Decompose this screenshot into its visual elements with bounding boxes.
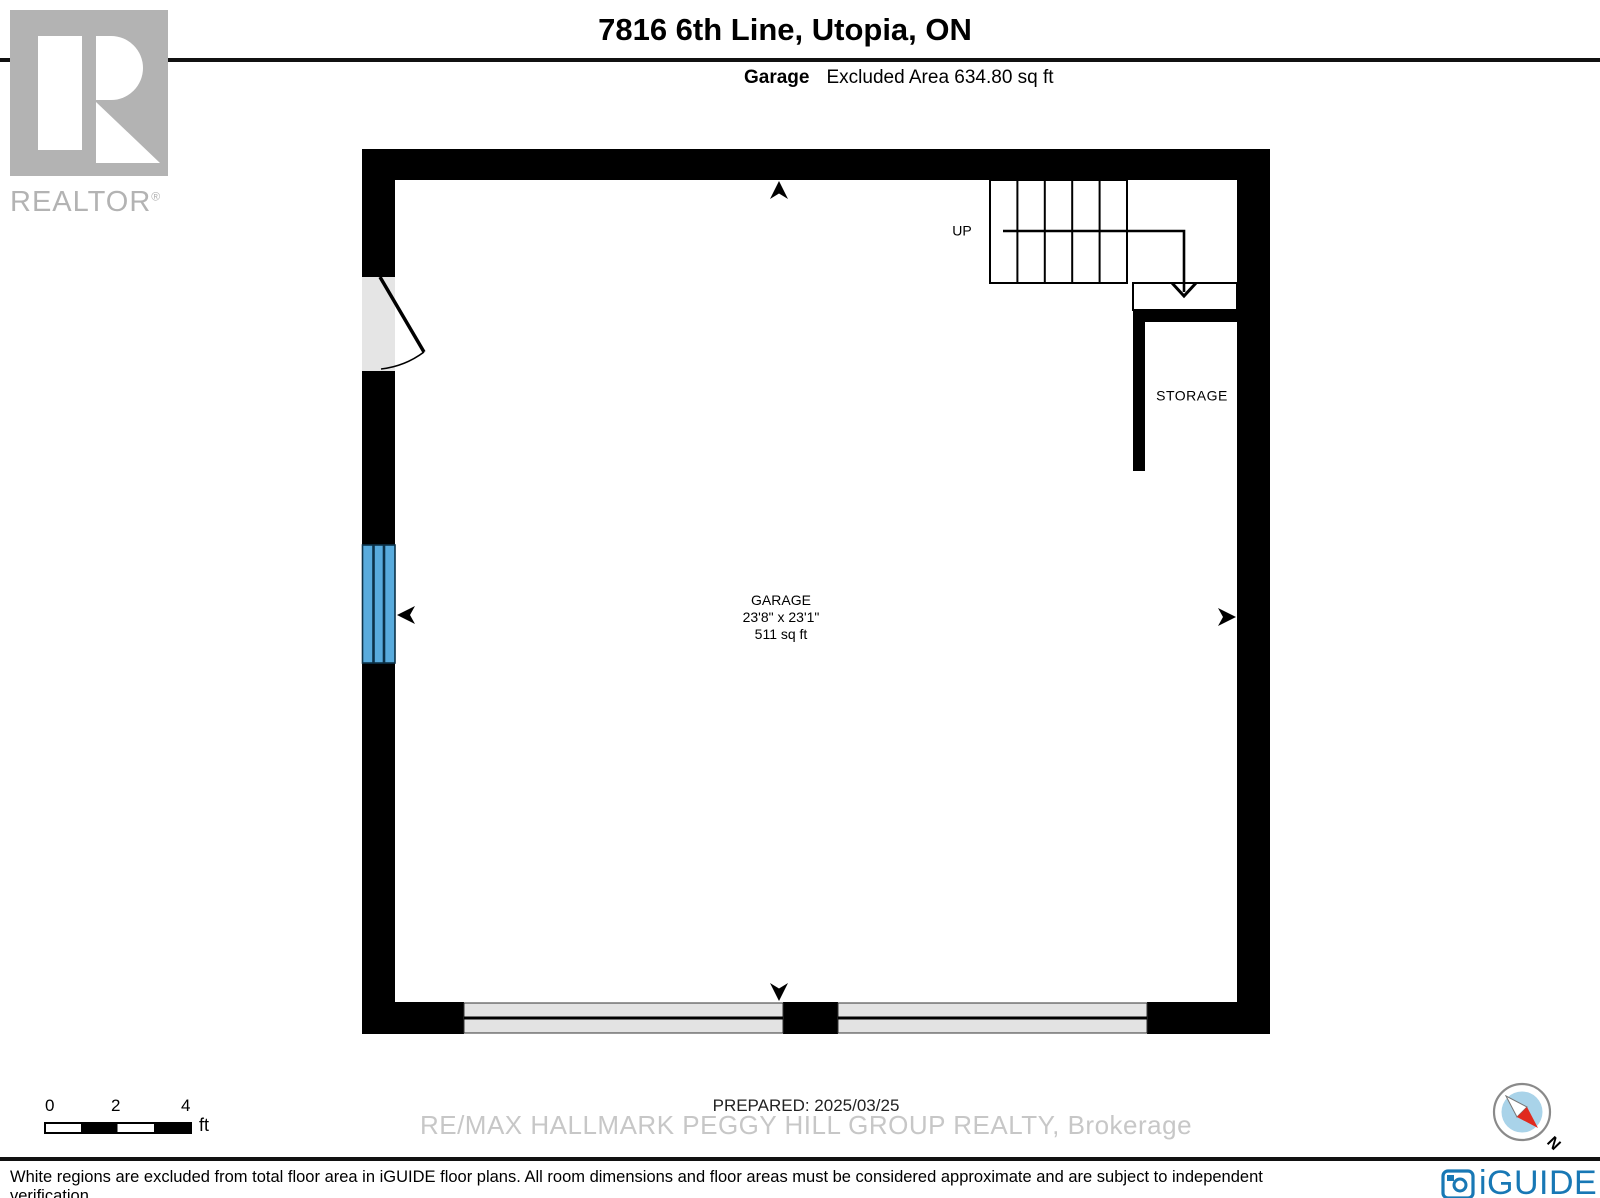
disclaimer-text: White regions are excluded from total fl… xyxy=(10,1168,1350,1198)
garage-room-label: GARAGE 23'8" x 23'1" 511 sq ft xyxy=(743,592,820,643)
storage-room-label: STORAGE xyxy=(1156,388,1228,405)
scale-tick-4: 4 xyxy=(181,1096,190,1116)
compass-north-label: N xyxy=(1543,1134,1563,1154)
room-name-label: Garage xyxy=(744,67,809,89)
realtor-logo: REALTOR® xyxy=(10,10,180,219)
floorplan-drawing xyxy=(340,140,1300,1050)
scale-bar xyxy=(44,1122,192,1134)
scale-tick-2: 2 xyxy=(111,1096,120,1116)
iguide-logo: iGUIDE xyxy=(1441,1164,1597,1198)
view-markers xyxy=(397,181,1236,1001)
compass-icon: N xyxy=(1489,1080,1569,1154)
excluded-area-label: Excluded Area 634.80 sq ft xyxy=(826,67,1053,89)
footer-divider xyxy=(0,1157,1600,1161)
garage-dimensions: 23'8" x 23'1" xyxy=(743,609,820,626)
garage-name: GARAGE xyxy=(743,592,820,609)
window xyxy=(363,545,396,663)
staircase xyxy=(990,180,1237,310)
marker-right-icon xyxy=(1218,608,1236,626)
scale-unit-label: ft xyxy=(199,1115,209,1136)
marker-left-icon xyxy=(397,606,415,624)
stair-up-label: UP xyxy=(952,223,971,240)
scale-tick-0: 0 xyxy=(45,1096,54,1116)
floor-subtitle: Garage Excluded Area 634.80 sq ft xyxy=(744,67,1054,89)
realtor-block-r-icon xyxy=(10,10,170,178)
header-divider xyxy=(0,58,1600,62)
realtor-wordmark: REALTOR® xyxy=(10,186,180,219)
floorplan-page: 7816 6th Line, Utopia, ON Garage Exclude… xyxy=(0,0,1600,1198)
garage-area: 511 sq ft xyxy=(743,626,820,643)
page-title: 7816 6th Line, Utopia, ON xyxy=(598,12,972,48)
marker-down-icon xyxy=(770,983,788,1001)
entry-door xyxy=(362,277,424,371)
iguide-camera-icon xyxy=(1441,1168,1475,1198)
iguide-wordmark: iGUIDE xyxy=(1479,1164,1597,1198)
marker-up-icon xyxy=(770,181,788,199)
prepared-date: PREPARED: 2025/03/25 xyxy=(713,1096,900,1116)
